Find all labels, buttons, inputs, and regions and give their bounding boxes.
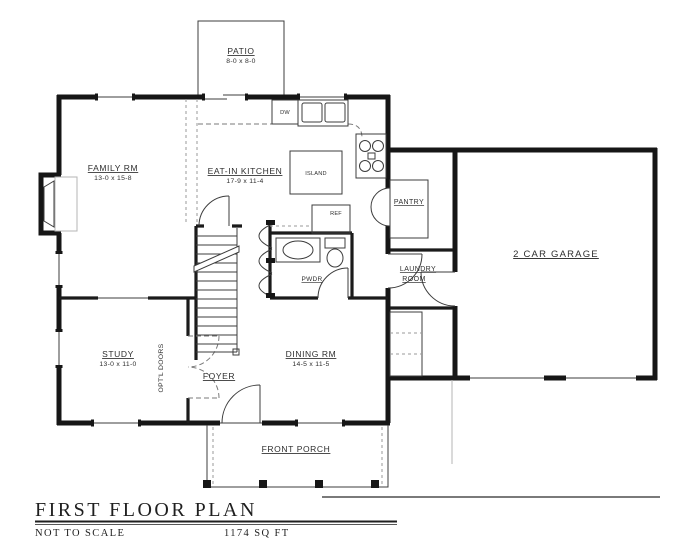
dims-study: 13-0 x 11-0 [99, 361, 136, 368]
scale-note: NOT TO SCALE [35, 528, 125, 539]
porch-column [259, 480, 267, 488]
area-note: 1174 SQ FT [224, 528, 290, 539]
interior-walls [59, 222, 453, 423]
dims-dining: 14-5 x 11-5 [292, 361, 329, 368]
label-garage: 2 CAR GARAGE [513, 249, 599, 260]
stove [356, 134, 386, 178]
porch-column [371, 480, 379, 488]
title-block: FIRST FLOOR PLAN NOT TO SCALE 1174 SQ FT [35, 497, 660, 539]
dims-kitchen: 17-9 x 11-4 [226, 178, 263, 185]
pantry-box [390, 180, 428, 238]
label-patio: PATIO [227, 46, 254, 56]
floor-plan-canvas: PATIO 8-0 x 8-0 FAMILY RM 13-0 x 15-8 EA… [0, 0, 700, 540]
exterior-walls [41, 95, 657, 425]
porch-column [315, 480, 323, 488]
label-family: FAMILY RM [88, 163, 138, 173]
label-study: STUDY [102, 349, 134, 359]
utility-rooms [390, 180, 452, 464]
plan-title: FIRST FLOOR PLAN [35, 499, 257, 521]
label-optional-doors: OPT'L DOORS [158, 343, 165, 392]
refrigerator-counter [270, 205, 350, 233]
label-dishwasher: DW [280, 110, 290, 116]
floor-plan-page: PATIO 8-0 x 8-0 FAMILY RM 13-0 x 15-8 EA… [0, 0, 700, 540]
room-labels: PATIO 8-0 x 8-0 FAMILY RM 13-0 x 15-8 EA… [88, 46, 599, 454]
label-laundry-2: ROOM [402, 276, 425, 283]
label-powder: PWDR [301, 276, 322, 283]
label-laundry-1: LAUNDRY [400, 266, 436, 273]
label-island: ISLAND [305, 171, 326, 177]
label-kitchen: EAT-IN KITCHEN [208, 166, 283, 176]
porch-column [203, 480, 211, 488]
label-porch: FRONT PORCH [262, 444, 331, 454]
front-porch [203, 425, 388, 488]
label-foyer: FOYER [203, 371, 235, 381]
fireplace [44, 177, 77, 231]
door-swings [188, 188, 455, 423]
label-dining: DINING RM [286, 349, 337, 359]
label-refrigerator: REF [330, 211, 342, 217]
dims-family: 13-0 x 15-8 [94, 175, 132, 182]
dims-patio: 8-0 x 8-0 [226, 58, 256, 65]
label-pantry: PANTRY [394, 199, 424, 206]
cased-opening [186, 99, 197, 224]
shelf-closet [390, 312, 422, 376]
powder-room-fixtures [276, 238, 345, 267]
